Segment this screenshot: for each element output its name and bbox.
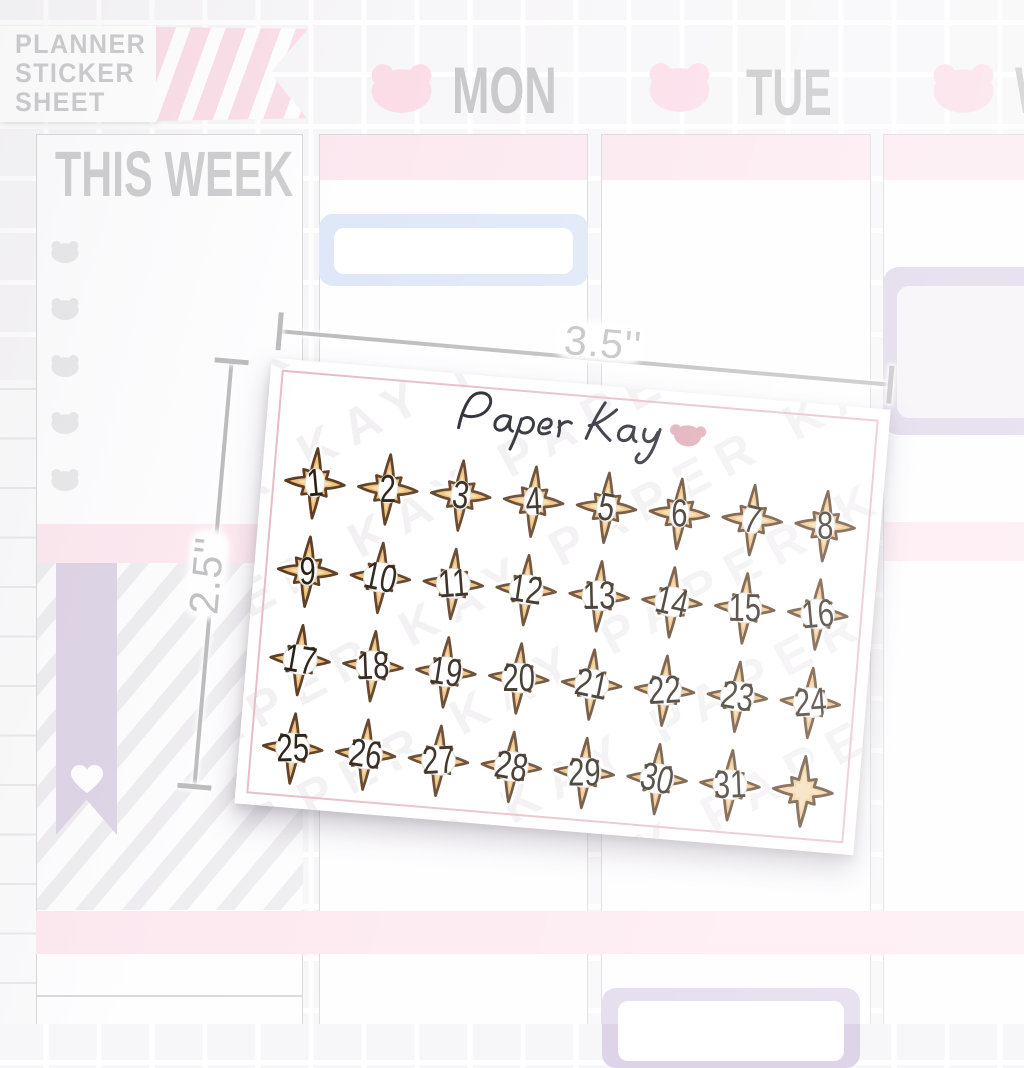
svg-text:6: 6 <box>671 492 688 535</box>
svg-text:12: 12 <box>507 566 546 613</box>
svg-text:29: 29 <box>568 751 601 794</box>
svg-text:24: 24 <box>793 680 829 725</box>
svg-text:15: 15 <box>728 587 761 630</box>
svg-text:11: 11 <box>437 561 470 606</box>
svg-text:31: 31 <box>713 763 747 807</box>
svg-text:20: 20 <box>502 657 535 700</box>
svg-text:19: 19 <box>426 649 465 696</box>
svg-text:27: 27 <box>421 738 456 783</box>
svg-text:13: 13 <box>582 574 615 618</box>
svg-text:16: 16 <box>800 592 836 638</box>
svg-text:2: 2 <box>380 468 396 511</box>
svg-text:9: 9 <box>299 550 315 593</box>
svg-text:26: 26 <box>346 731 385 778</box>
svg-text:22: 22 <box>647 668 682 713</box>
svg-text:8: 8 <box>817 505 834 548</box>
svg-text:4: 4 <box>524 480 543 524</box>
svg-text:25: 25 <box>276 727 309 771</box>
svg-text:18: 18 <box>356 644 390 688</box>
